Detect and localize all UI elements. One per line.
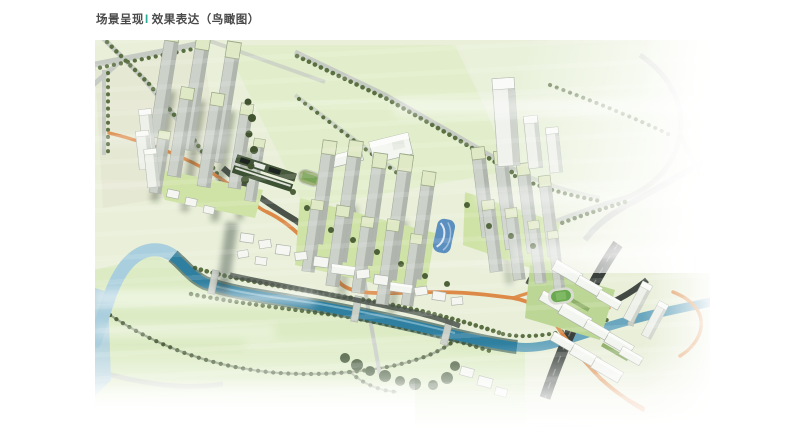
birdseye-render — [95, 40, 710, 428]
section-label: 场景呈现 — [96, 14, 144, 26]
title-divider: I — [144, 14, 152, 26]
page-title: 效果表达（鸟瞰图） — [152, 14, 260, 26]
birdseye-illustration — [95, 40, 710, 428]
slide-title: 场景呈现I效果表达（鸟瞰图） — [96, 11, 260, 27]
